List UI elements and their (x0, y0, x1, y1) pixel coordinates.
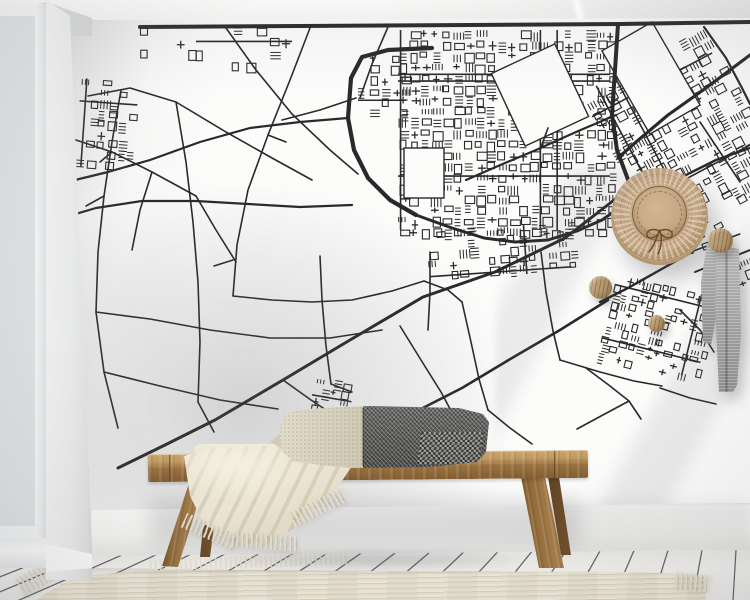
wall-knob (589, 276, 612, 299)
window-jamb (35, 4, 47, 542)
bench-floor-shadow (150, 548, 590, 574)
scarf-strand (713, 245, 741, 395)
wall-knob (648, 315, 665, 332)
pillow-seam (362, 408, 364, 466)
rug-fringe (675, 572, 711, 592)
window-pane-grid (0, 16, 35, 526)
wall-knob (708, 228, 733, 253)
room-scene (0, 0, 750, 600)
french-window (0, 4, 47, 542)
gray-scarf (699, 243, 743, 395)
straw-hat (611, 168, 708, 265)
hat-bow-ribbon (611, 168, 708, 265)
pillow-checker-patch (417, 432, 483, 464)
window-sill (0, 538, 47, 568)
pillow-cream-half (279, 406, 363, 468)
lumbar-pillow (279, 406, 489, 468)
